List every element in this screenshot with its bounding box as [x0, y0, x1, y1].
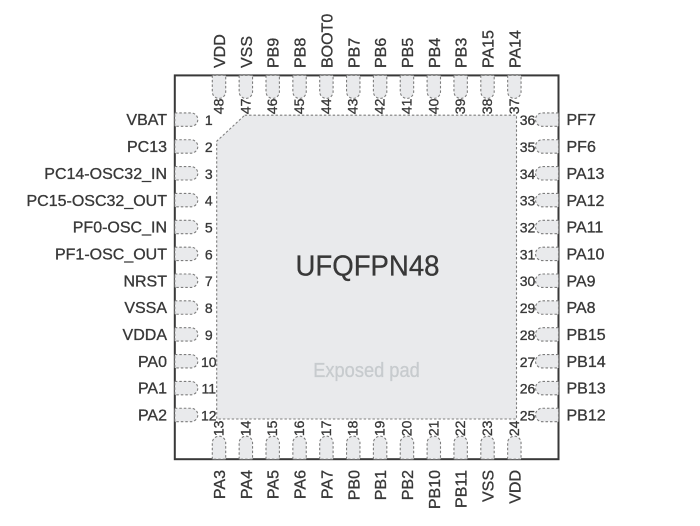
svg-text:PB7: PB7 [346, 38, 363, 68]
svg-text:31: 31 [520, 246, 536, 262]
svg-text:34: 34 [520, 166, 536, 182]
svg-text:40: 40 [425, 98, 441, 114]
svg-text:PA4: PA4 [239, 470, 256, 499]
svg-text:28: 28 [520, 327, 536, 343]
svg-text:PB12: PB12 [567, 408, 606, 425]
svg-text:32: 32 [520, 220, 536, 236]
svg-text:29: 29 [520, 300, 536, 316]
svg-text:PA5: PA5 [266, 470, 283, 499]
svg-text:PC15-OSC32_OUT: PC15-OSC32_OUT [27, 193, 168, 210]
svg-text:41: 41 [398, 98, 414, 114]
svg-text:39: 39 [452, 98, 468, 114]
svg-text:PB8: PB8 [293, 38, 310, 68]
svg-text:10: 10 [201, 354, 217, 370]
svg-text:PB0: PB0 [346, 470, 363, 500]
svg-text:PA15: PA15 [481, 30, 498, 68]
svg-text:VDD: VDD [212, 34, 229, 68]
svg-text:PA9: PA9 [567, 273, 596, 290]
svg-text:21: 21 [425, 420, 441, 436]
svg-text:23: 23 [479, 420, 495, 436]
svg-text:PA2: PA2 [138, 408, 167, 425]
svg-text:43: 43 [345, 98, 361, 114]
svg-text:30: 30 [520, 273, 536, 289]
svg-text:42: 42 [372, 98, 388, 114]
svg-text:UFQFPN48: UFQFPN48 [296, 250, 440, 282]
svg-text:48: 48 [211, 98, 227, 114]
svg-text:NRST: NRST [123, 273, 167, 290]
svg-text:22: 22 [452, 420, 468, 436]
svg-text:PB1: PB1 [373, 470, 390, 500]
svg-text:9: 9 [205, 327, 213, 343]
svg-text:PA8: PA8 [567, 300, 596, 317]
svg-text:13: 13 [211, 420, 227, 436]
svg-text:PB3: PB3 [454, 38, 471, 68]
svg-text:VSSA: VSSA [124, 300, 167, 317]
svg-text:PF7: PF7 [567, 112, 596, 129]
svg-text:44: 44 [318, 98, 334, 114]
svg-text:BOOT0: BOOT0 [319, 14, 336, 68]
svg-text:PC13: PC13 [127, 139, 167, 156]
svg-text:PB10: PB10 [427, 470, 444, 509]
svg-text:2: 2 [205, 139, 213, 155]
svg-text:36: 36 [520, 112, 536, 128]
svg-text:4: 4 [205, 193, 213, 209]
svg-text:5: 5 [205, 220, 213, 236]
svg-text:17: 17 [318, 420, 334, 436]
svg-text:7: 7 [205, 273, 213, 289]
svg-text:37: 37 [506, 98, 522, 114]
svg-text:33: 33 [520, 193, 536, 209]
svg-text:46: 46 [264, 98, 280, 114]
svg-text:PA13: PA13 [567, 166, 605, 183]
svg-text:VSS: VSS [481, 470, 498, 502]
svg-text:PB9: PB9 [266, 38, 283, 68]
svg-text:19: 19 [372, 420, 388, 436]
svg-text:PA7: PA7 [319, 470, 336, 499]
svg-text:3: 3 [205, 166, 213, 182]
svg-text:PB11: PB11 [454, 470, 471, 508]
svg-text:PB15: PB15 [567, 327, 606, 344]
svg-text:8: 8 [205, 300, 213, 316]
svg-text:27: 27 [520, 354, 536, 370]
svg-text:PA0: PA0 [138, 354, 167, 371]
svg-text:PF0-OSC_IN: PF0-OSC_IN [73, 220, 167, 237]
svg-text:PB14: PB14 [567, 354, 606, 371]
svg-text:45: 45 [291, 98, 307, 114]
svg-text:PC14-OSC32_IN: PC14-OSC32_IN [44, 166, 167, 183]
svg-text:15: 15 [264, 420, 280, 436]
svg-text:PA1: PA1 [138, 381, 167, 398]
svg-text:PF1-OSC_OUT: PF1-OSC_OUT [55, 246, 167, 263]
svg-text:PF6: PF6 [567, 139, 596, 156]
svg-text:PA10: PA10 [567, 246, 605, 263]
svg-text:14: 14 [237, 420, 253, 436]
svg-text:PA12: PA12 [567, 193, 605, 210]
svg-text:PB13: PB13 [567, 381, 606, 398]
svg-text:18: 18 [345, 420, 361, 436]
svg-text:PA14: PA14 [507, 30, 524, 68]
svg-text:6: 6 [205, 246, 213, 262]
svg-text:47: 47 [237, 98, 253, 114]
svg-text:PA6: PA6 [293, 470, 310, 499]
svg-text:PB6: PB6 [373, 38, 390, 68]
svg-text:38: 38 [479, 98, 495, 114]
svg-text:PA11: PA11 [567, 220, 604, 237]
svg-text:Exposed pad: Exposed pad [313, 359, 420, 382]
svg-text:26: 26 [520, 381, 536, 397]
svg-text:VBAT: VBAT [126, 112, 167, 129]
svg-text:VSS: VSS [239, 36, 256, 68]
svg-text:PB2: PB2 [400, 470, 417, 500]
svg-text:PB5: PB5 [400, 38, 417, 68]
svg-text:35: 35 [520, 139, 536, 155]
svg-text:16: 16 [291, 420, 307, 436]
svg-text:25: 25 [520, 407, 536, 423]
svg-text:11: 11 [202, 381, 217, 397]
svg-text:PB4: PB4 [427, 38, 444, 68]
svg-text:VDD: VDD [507, 470, 524, 504]
svg-text:VDDA: VDDA [123, 327, 168, 344]
svg-text:PA3: PA3 [212, 470, 229, 499]
svg-text:20: 20 [398, 420, 414, 436]
